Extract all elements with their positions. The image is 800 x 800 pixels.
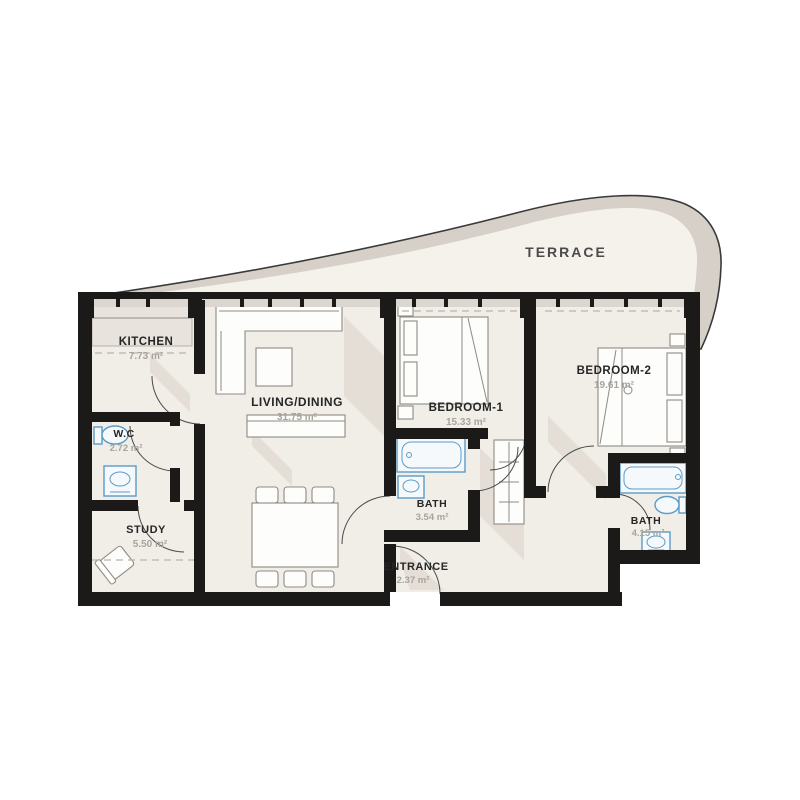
bath1-sink-icon [398, 476, 424, 498]
kitchen-label: KITCHEN [119, 336, 174, 348]
bath2-area: 4.15 m² [632, 528, 665, 539]
terrace-label: TERRACE [525, 244, 607, 260]
bedroom2-area: 19.61 m² [594, 380, 635, 391]
bed2-icon [598, 334, 686, 460]
bedroom2-label: BEDROOM-2 [577, 365, 652, 377]
wardrobe-icon [494, 440, 524, 524]
bedroom1-area: 15.33 m² [446, 417, 487, 428]
bath1-label: BATH [417, 498, 447, 510]
study-area: 5.50 m² [133, 539, 168, 550]
kitchen-area: 7.73 m² [129, 351, 164, 362]
bath2-label: BATH [631, 515, 661, 527]
wc-area: 2.72 m² [110, 443, 143, 454]
bath2-tub-icon [620, 463, 686, 493]
coffee-table-icon [256, 348, 292, 386]
floor-plan-drawing: TERRACE KITCHEN 7.73 m² LIVING/DINING 31… [0, 0, 800, 800]
entrance-label: ENTRANCE [383, 561, 448, 573]
bath2-toilet-icon [655, 497, 686, 514]
wc-label: W.C [113, 428, 134, 440]
bath1-tub-icon [397, 438, 465, 472]
study-label: STUDY [126, 524, 166, 536]
bedroom1-label: BEDROOM-1 [429, 402, 504, 414]
floor-plan-page: TERRACE KITCHEN 7.73 m² LIVING/DINING 31… [0, 0, 800, 800]
dining-table-icon [252, 487, 338, 587]
entrance-area: 2.37 m² [397, 575, 430, 586]
living-label: LIVING/DINING [251, 395, 343, 409]
bath1-area: 3.54 m² [416, 512, 449, 523]
living-area: 31.75 m² [277, 412, 318, 423]
wc-sink-icon [104, 466, 136, 496]
